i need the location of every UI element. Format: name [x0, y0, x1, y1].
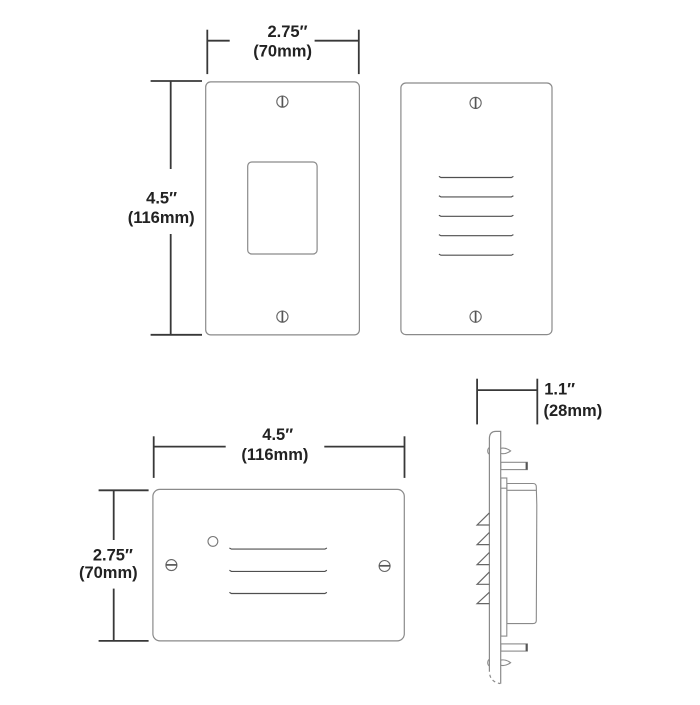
- svg-text:4.5″: 4.5″: [146, 189, 177, 207]
- svg-text:2.75″: 2.75″: [93, 547, 133, 565]
- svg-text:(70mm): (70mm): [253, 43, 312, 61]
- svg-text:(28mm): (28mm): [544, 402, 603, 420]
- svg-text:1.1″: 1.1″: [544, 381, 575, 399]
- svg-text:(70mm): (70mm): [79, 564, 138, 582]
- svg-text:(116mm): (116mm): [128, 209, 195, 227]
- svg-text:4.5″: 4.5″: [262, 426, 293, 444]
- svg-text:2.75″: 2.75″: [267, 23, 307, 41]
- svg-text:(116mm): (116mm): [241, 446, 308, 464]
